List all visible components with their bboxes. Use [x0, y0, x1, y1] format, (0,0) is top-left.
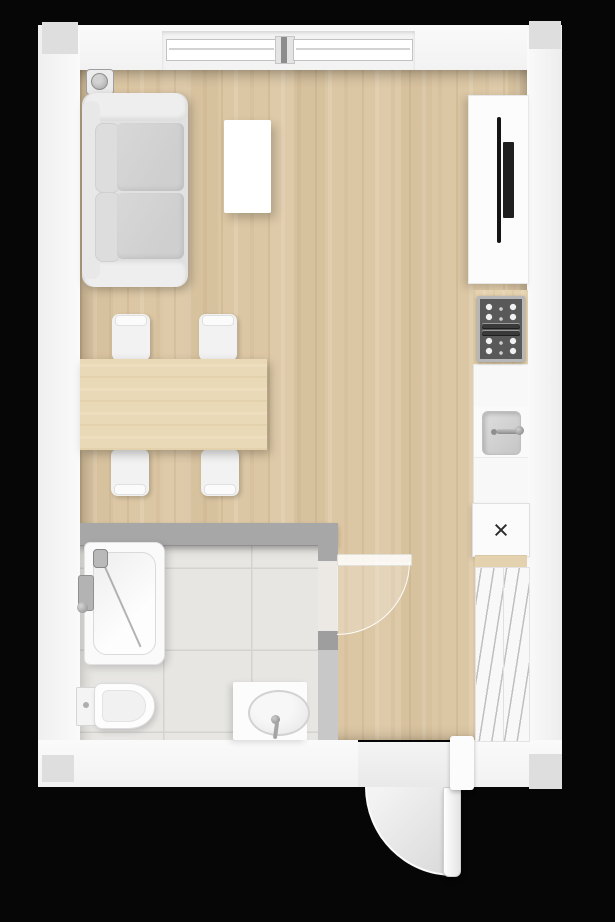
entry-door-threshold — [358, 742, 450, 787]
bathroom-door-threshold — [318, 561, 338, 631]
window — [162, 31, 415, 70]
toilet-flush-button — [83, 702, 89, 708]
vanity-sink — [233, 682, 307, 740]
chair-backrest — [202, 315, 234, 326]
corner-speaker — [86, 69, 114, 95]
cooktop-grate — [482, 323, 520, 329]
shower-knob — [77, 602, 88, 613]
window-pane-right — [293, 39, 413, 61]
tv-screen — [497, 117, 501, 243]
sofa-seat-cushion — [117, 193, 184, 259]
speaker-disc-icon — [91, 73, 108, 90]
window-mullion — [275, 36, 295, 64]
kitchen-faucet-knob — [515, 426, 524, 435]
wall-corner-top-left — [42, 22, 78, 54]
cooktop — [477, 296, 525, 362]
toilet-seat — [102, 690, 146, 722]
wall-left — [38, 25, 80, 787]
dining-chair — [199, 314, 237, 361]
sofa-seat-cushion — [117, 123, 184, 191]
chair-backrest — [114, 484, 146, 495]
floor-plan-canvas: × — [0, 0, 615, 922]
appliance-cabinet-x: × — [472, 503, 530, 557]
dining-chair — [112, 314, 150, 361]
shower-handset — [93, 549, 108, 568]
kitchen-cabinet — [473, 364, 528, 409]
wall-right — [527, 25, 562, 787]
cooktop-panel — [480, 299, 522, 359]
bathroom-door-leaf — [337, 554, 412, 566]
bathroom-partition-right-upper — [318, 523, 338, 561]
entry-door-jamb — [450, 736, 474, 790]
cooktop-grate — [482, 330, 520, 336]
chair-backrest — [115, 315, 147, 326]
appliance-x-marker: × — [493, 517, 509, 544]
wall-corner-bottom-right — [529, 754, 562, 789]
bathroom-partition-right-block — [318, 631, 338, 650]
wall-corner-top-right — [529, 21, 561, 49]
dining-chair — [201, 449, 239, 496]
bathroom-partition-right-lower — [318, 650, 338, 740]
entry-door-leaf — [443, 787, 461, 877]
shelf-unit — [475, 567, 530, 742]
toilet-bowl — [94, 683, 155, 729]
wall-corner-bottom-left — [42, 755, 74, 782]
kitchen-cabinet — [473, 457, 528, 505]
entry-door-swing-arc — [365, 787, 453, 876]
chair-backrest — [204, 484, 236, 495]
wall-bottom-left — [38, 740, 358, 787]
tv-mount — [503, 142, 514, 218]
vanity-basin — [248, 690, 310, 736]
dining-table — [80, 359, 267, 450]
coffee-table — [224, 120, 271, 213]
sofa — [82, 93, 188, 287]
dining-chair — [111, 449, 149, 496]
window-pane-left — [166, 39, 277, 61]
